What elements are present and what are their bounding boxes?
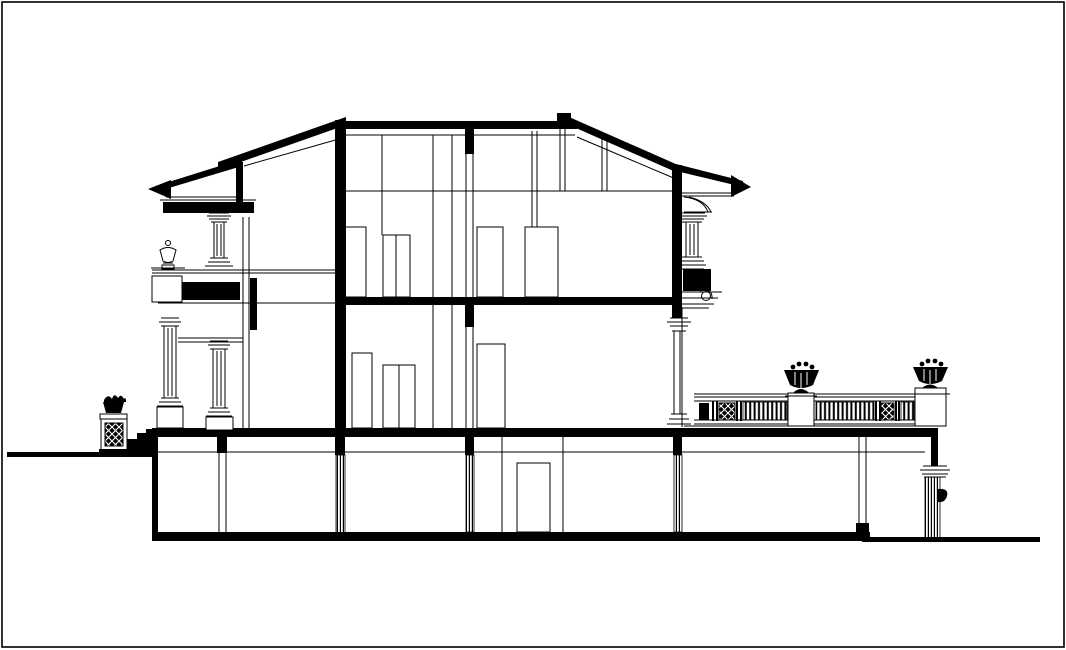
basement-column-a xyxy=(336,455,345,533)
balustrade-post-5 xyxy=(875,401,877,421)
urn-2-fruit-3 xyxy=(933,359,938,364)
terrace-column-shaft xyxy=(925,477,940,538)
terrace-edge-beam xyxy=(931,430,938,466)
corbel-right xyxy=(683,269,711,291)
balusters-run-3 xyxy=(901,402,914,420)
corbel-scroll xyxy=(702,292,711,301)
col-1f-porch-r-pedestal xyxy=(206,417,233,430)
porch-back-wall xyxy=(250,278,257,330)
balustrade-end-panel xyxy=(699,403,709,420)
roof-slope-right xyxy=(560,113,678,173)
balusters-run-2 xyxy=(816,402,874,420)
balustrade-post-4 xyxy=(740,401,742,421)
urn-1-fruit-2 xyxy=(797,362,802,367)
drawing xyxy=(0,0,1066,650)
balustrade-post-2 xyxy=(716,401,718,421)
ground-line-left xyxy=(7,452,108,457)
balusters-run-1 xyxy=(743,402,787,420)
eave-left xyxy=(159,159,242,191)
balustrade-pedestal-1 xyxy=(788,393,814,426)
ground-line-right xyxy=(862,537,1040,542)
urn-1-foot xyxy=(793,389,809,393)
door-2f-mid xyxy=(477,227,503,297)
urn-2-foot xyxy=(922,385,938,389)
wall-left xyxy=(335,120,346,430)
porch-entablature xyxy=(163,202,254,213)
urn-2-fruit-4 xyxy=(939,362,944,367)
urn-1-fruit-3 xyxy=(804,362,809,367)
eave-left-fascia xyxy=(148,180,171,199)
planter-flowers xyxy=(104,395,126,402)
basement-column-b xyxy=(466,455,474,532)
balustrade-panel-x-1 xyxy=(719,403,735,420)
basement-pier-stub-c xyxy=(465,428,474,455)
basement-column-c xyxy=(674,455,682,532)
finial-bowl xyxy=(160,248,176,263)
basement-wall-right-footing xyxy=(856,523,869,533)
balustrade-post-7 xyxy=(895,401,897,421)
planter-pot xyxy=(103,402,124,413)
slab-ground xyxy=(152,428,938,437)
planter-lattice xyxy=(105,423,123,446)
balustrade-post-8 xyxy=(898,401,900,421)
door-basement xyxy=(517,463,550,532)
terrace-column-bracket xyxy=(938,489,947,502)
basement-pier-stub-b xyxy=(335,430,345,455)
balustrade-post-3 xyxy=(736,401,738,421)
urn-1-fruit-1 xyxy=(791,365,796,370)
urn-1-fruit-4 xyxy=(810,365,815,370)
wall-center-mid xyxy=(465,305,474,327)
door-1f-left xyxy=(352,353,372,428)
balustrade-post-1 xyxy=(712,401,714,421)
balustrade-panel-x-2 xyxy=(881,403,894,420)
eave-right-fascia xyxy=(731,175,751,197)
door-2f-left xyxy=(345,227,366,297)
wall-right xyxy=(672,165,682,318)
roof-flat xyxy=(337,121,577,129)
urn-2-fruit-2 xyxy=(926,359,931,364)
drawing-page xyxy=(0,0,1066,650)
slab-basement xyxy=(152,532,870,541)
balcony-beam xyxy=(182,282,240,300)
finial-ball xyxy=(166,241,171,246)
page-border xyxy=(2,2,1064,647)
door-2f-right xyxy=(525,227,558,297)
planter-pedestal-cap xyxy=(100,414,127,419)
door-1f-mid xyxy=(477,344,505,428)
col-1f-porch-l-pedestal xyxy=(157,407,183,428)
wall-center-top xyxy=(465,122,474,154)
planter-base xyxy=(99,449,129,453)
basement-pier-stub-a xyxy=(217,430,227,453)
basement-pier-stub-d xyxy=(673,428,682,455)
eave-right-cornice-2 xyxy=(689,197,711,212)
balcony-corner-pedestal xyxy=(152,276,182,302)
slab-2f xyxy=(345,297,682,305)
urn-2-fruit-1 xyxy=(920,362,925,367)
